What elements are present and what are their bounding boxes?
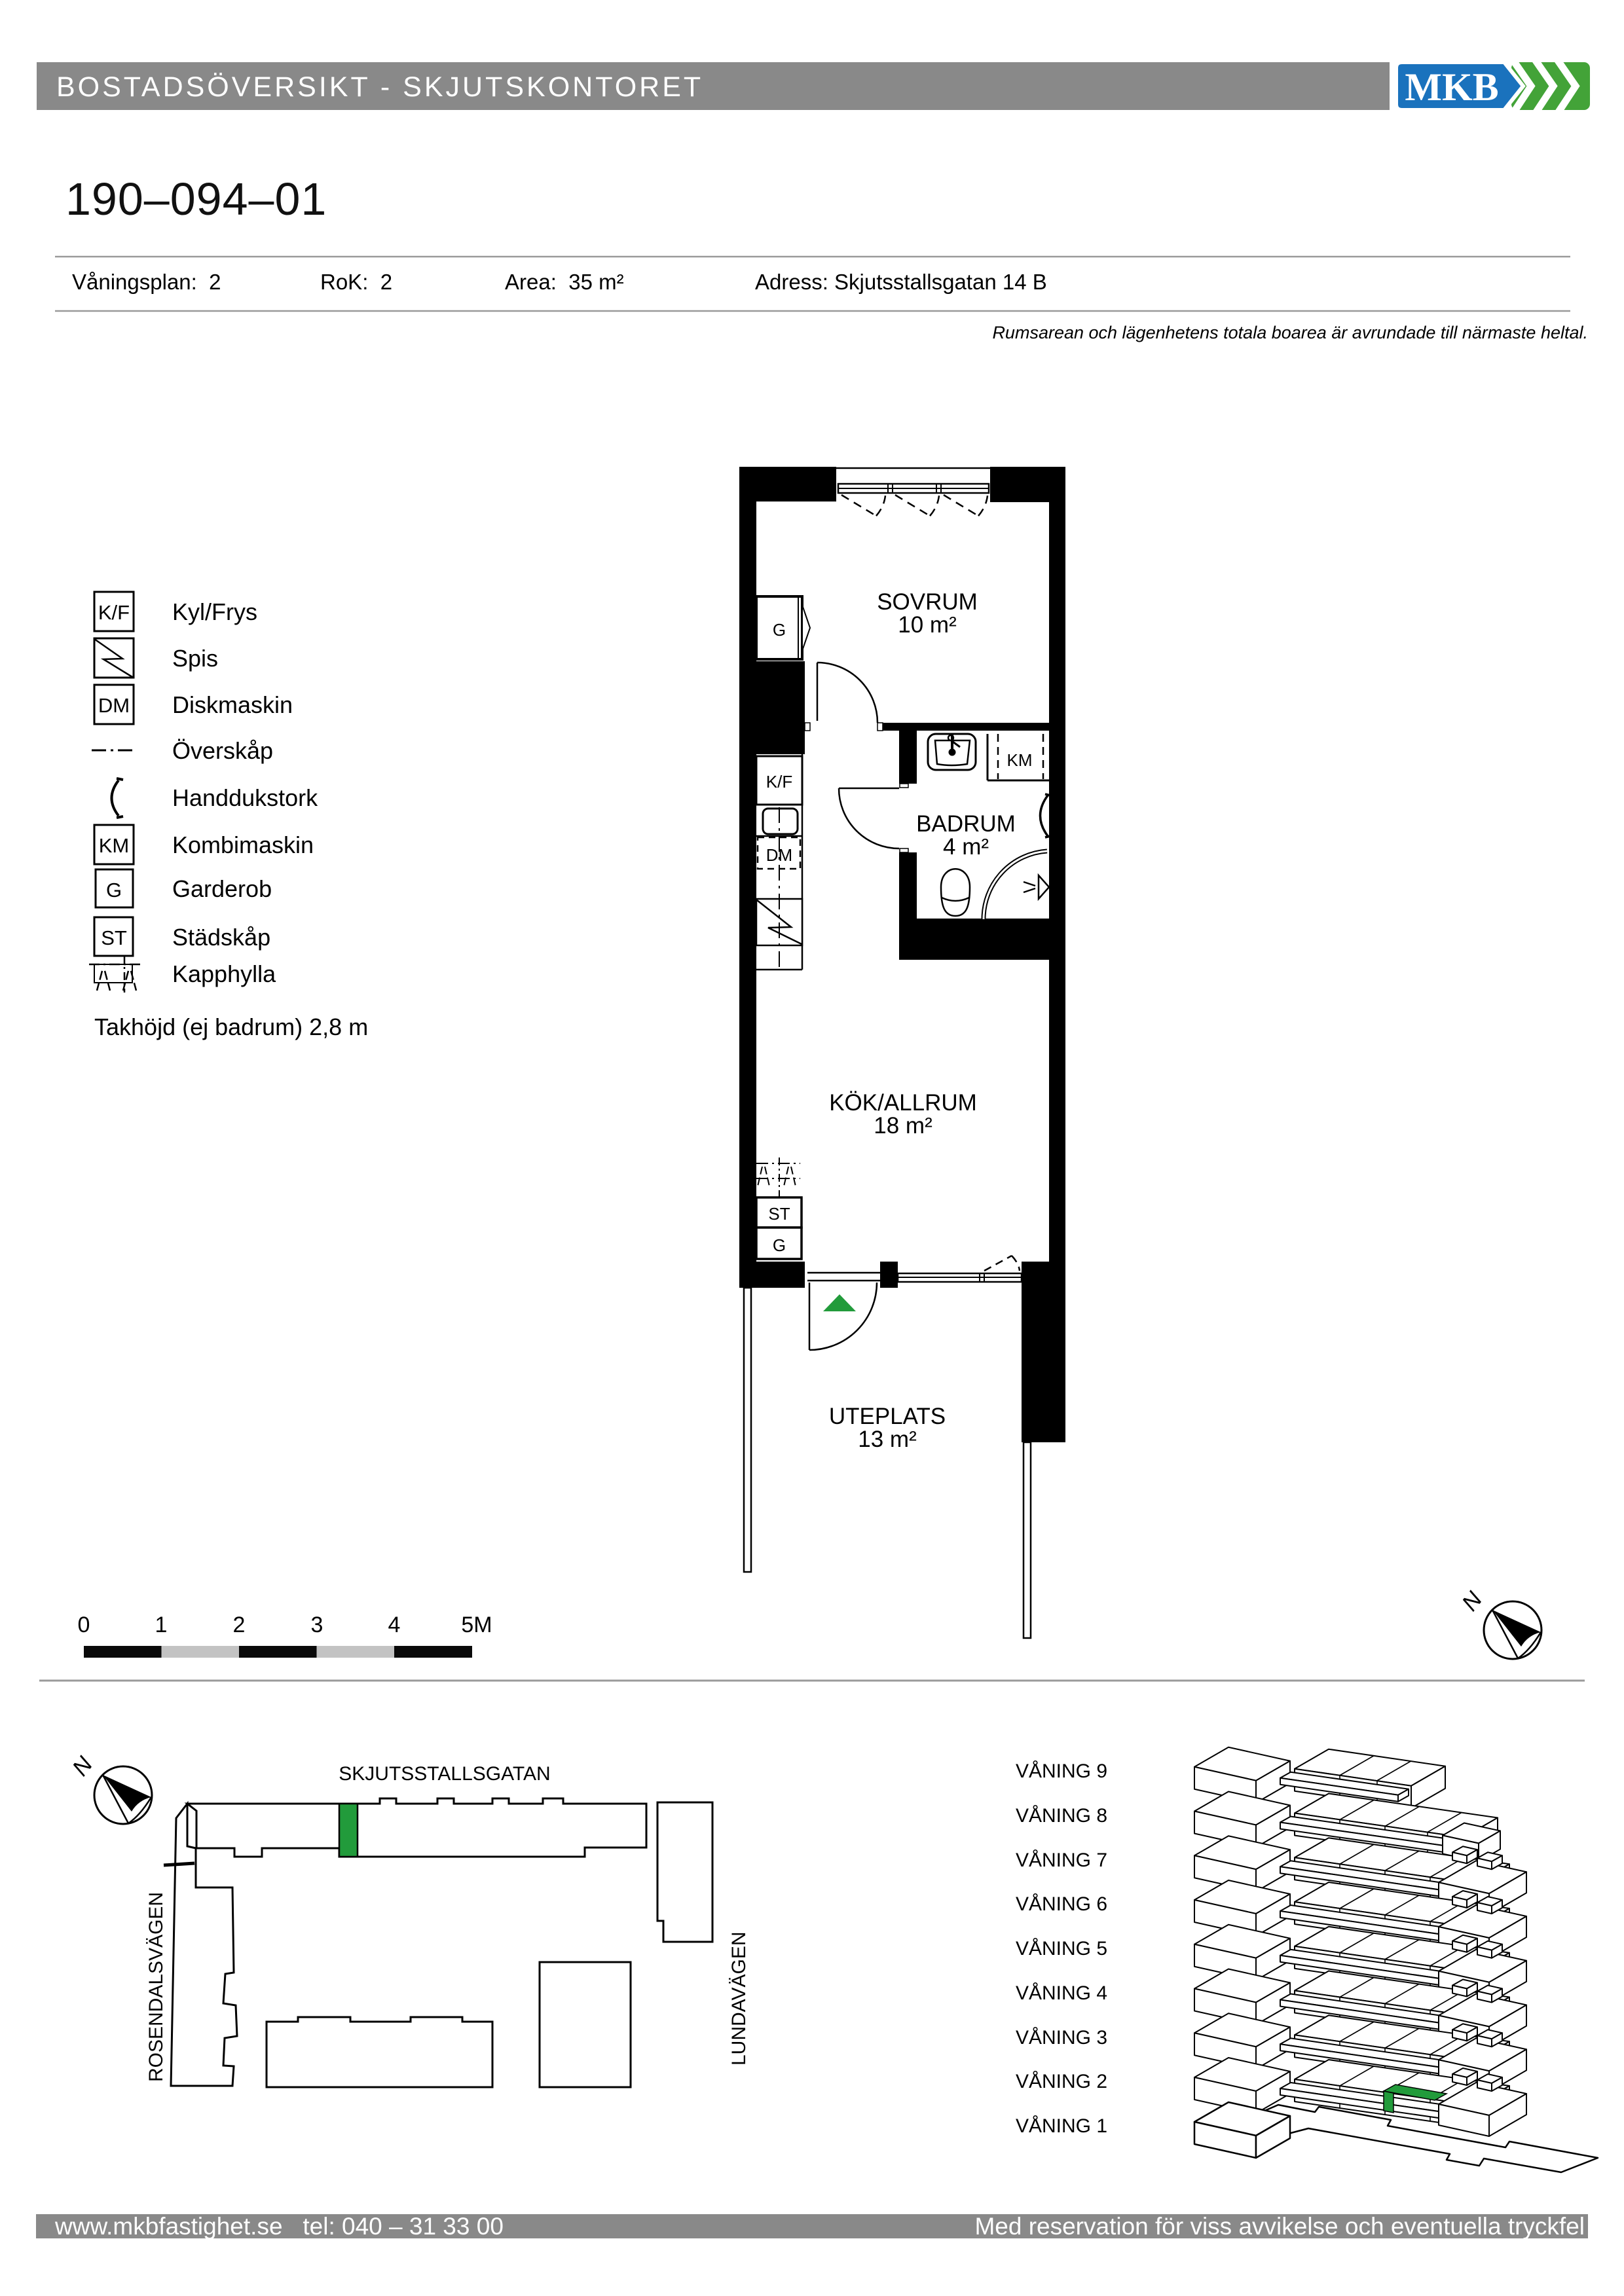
svg-text:Våningsplan: 2: Våningsplan: 2 [72,270,221,294]
svg-text:Spis: Spis [172,645,218,672]
svg-text:4 m²: 4 m² [943,834,989,860]
svg-text:18 m²: 18 m² [874,1113,932,1139]
svg-text:Kapphylla: Kapphylla [172,960,276,987]
svg-text:3: 3 [311,1613,323,1637]
svg-text:VÅNING 7: VÅNING 7 [1016,1850,1107,1871]
svg-text:2: 2 [233,1613,246,1637]
svg-text:Med reservation för viss avvik: Med reservation för viss avvikelse och e… [974,2213,1585,2240]
svg-text:ST: ST [768,1204,790,1224]
svg-text:13 m²: 13 m² [858,1427,916,1452]
svg-text:Takhöjd (ej badrum) 2,8 m: Takhöjd (ej badrum) 2,8 m [94,1013,368,1040]
svg-text:ST: ST [101,926,127,949]
svg-text:VÅNING 2: VÅNING 2 [1016,2071,1107,2092]
svg-text:Diskmaskin: Diskmaskin [172,691,293,718]
svg-text:KM: KM [99,834,130,857]
svg-text:BADRUM: BADRUM [916,811,1016,837]
svg-text:KÖK/ALLRUM: KÖK/ALLRUM [829,1090,977,1116]
svg-text:RoK: 2: RoK: 2 [320,270,392,294]
svg-text:1: 1 [155,1613,168,1637]
svg-text:VÅNING 5: VÅNING 5 [1016,1938,1107,1959]
svg-text:ROSENDALSVÄGEN: ROSENDALSVÄGEN [145,1892,167,2082]
svg-text:Garderob: Garderob [172,875,272,902]
svg-text:SKJUTSSTALLSGATAN: SKJUTSSTALLSGATAN [339,1763,550,1785]
svg-text:VÅNING 8: VÅNING 8 [1016,1805,1107,1827]
svg-text:Rumsarean och lägenhetens tota: Rumsarean och lägenhetens totala boarea … [992,323,1588,342]
svg-text:K/F: K/F [766,772,792,792]
svg-text:Kyl/Frys: Kyl/Frys [172,598,257,625]
svg-text:BOSTADSÖVERSIKT - SKJUTSKONTOR: BOSTADSÖVERSIKT - SKJUTSKONTORET [56,71,703,103]
svg-text:SOVRUM: SOVRUM [877,589,978,615]
svg-text:G: G [106,879,122,902]
svg-text:www.mkbfastighet.se tel: 040: www.mkbfastighet.se tel: 040 – 31 33 00 [54,2213,504,2240]
svg-text:VÅNING 4: VÅNING 4 [1016,1982,1107,2004]
svg-text:DM: DM [98,694,130,717]
svg-text:G: G [773,1235,786,1255]
svg-text:VÅNING 9: VÅNING 9 [1016,1760,1107,1782]
svg-text:LUNDAVÄGEN: LUNDAVÄGEN [728,1932,750,2066]
svg-text:10 m²: 10 m² [898,612,956,638]
svg-text:UTEPLATS: UTEPLATS [829,1404,946,1429]
svg-text:VÅNING 6: VÅNING 6 [1016,1893,1107,1915]
svg-text:N: N [1457,1586,1488,1615]
svg-text:Överskåp: Överskåp [172,737,273,764]
svg-text:KM: KM [1007,750,1033,770]
svg-text:Area: 35 m²: Area: 35 m² [505,270,624,294]
svg-text:Handdukstork: Handdukstork [172,784,318,811]
svg-text:Adress: Skjutsstallsgatan 14 B: Adress: Skjutsstallsgatan 14 B [755,270,1047,294]
svg-text:190–094–01: 190–094–01 [65,173,327,225]
svg-text:4: 4 [388,1613,401,1637]
svg-text:G: G [773,620,786,640]
svg-text:Kombimaskin: Kombimaskin [172,831,314,858]
svg-text:Städskåp: Städskåp [172,924,270,951]
svg-text:VÅNING 1: VÅNING 1 [1016,2115,1107,2137]
svg-text:5M: 5M [461,1613,492,1637]
svg-text:K/F: K/F [98,601,130,624]
svg-text:N: N [67,1751,98,1780]
svg-text:0: 0 [78,1613,90,1637]
svg-text:MKB: MKB [1405,65,1498,109]
svg-text:VÅNING 3: VÅNING 3 [1016,2027,1107,2049]
